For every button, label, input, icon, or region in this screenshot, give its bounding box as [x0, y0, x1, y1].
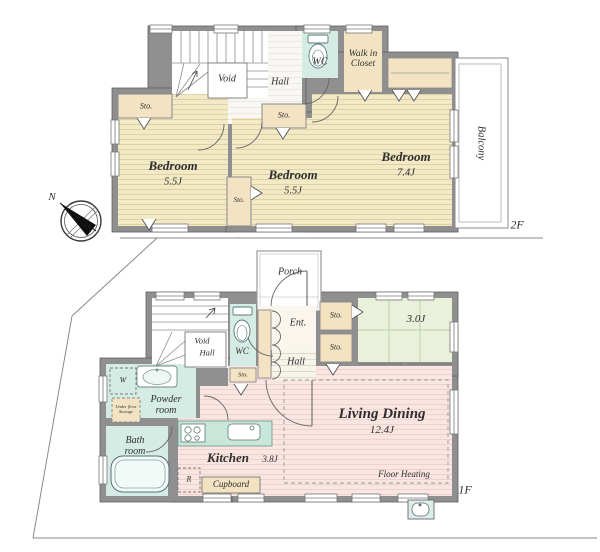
- room-label-hall-2f: Hall: [271, 78, 289, 89]
- room-label-balcony: Balcony: [475, 126, 486, 160]
- floor-plan: Void Hall WC Walk in Closet Sto. Sto. St…: [0, 0, 600, 552]
- room-area-bedroom2: 5.5J: [284, 185, 302, 196]
- room-label-bath-room: Bath room: [115, 436, 155, 458]
- room-label-storage-wc: Sto.: [238, 371, 248, 378]
- room-label-stair-hall: Hall: [199, 348, 214, 357]
- room-label-hall-1f: Hall: [287, 358, 305, 369]
- room-label-storage-2f-a: Sto.: [140, 103, 152, 112]
- room-label-porch: Porch: [278, 268, 302, 279]
- room-label-void-2f: Void: [218, 75, 236, 86]
- room-label-wc-1f: WC: [235, 347, 249, 357]
- room-label-walk-in-closet: Walk in Closet: [339, 49, 387, 70]
- porch-structure: [257, 251, 321, 314]
- label-under-floor-storage: Under floor Storage: [114, 405, 138, 415]
- room-label-storage-2f-b: Sto.: [278, 112, 290, 121]
- room-label-storage-2f-c: Sto.: [234, 197, 245, 205]
- room-label-storage-1f-1: Sto.: [330, 312, 342, 321]
- room-area-bedroom3: 7.4J: [397, 167, 415, 178]
- room-label-entrance: Ent.: [290, 319, 306, 330]
- room-label-kitchen: Kitchen: [207, 451, 249, 465]
- stove-icon: [181, 424, 205, 442]
- label-cupboard: Cupboard: [213, 480, 249, 490]
- floor1-label: 1F: [458, 484, 471, 497]
- shoe-cabinet: [258, 310, 271, 378]
- room-label-bedroom2: Bedroom: [268, 168, 317, 182]
- room-label-stair-void: Void: [194, 336, 209, 345]
- kitchen-sink-icon: [228, 424, 260, 440]
- room-area-living-dining: 12.4J: [370, 425, 394, 437]
- label-refrigerator: R: [187, 476, 192, 485]
- washbasin-icon: [137, 366, 177, 387]
- room-label-bedroom1: Bedroom: [148, 159, 197, 173]
- room-area-kitchen: 3.8J: [262, 455, 277, 465]
- compass-icon: [60, 201, 101, 241]
- water-heater-icon: [408, 500, 434, 519]
- room-label-powder-room: Powder room: [139, 395, 193, 417]
- label-floor-heating: Floor Heating: [378, 470, 430, 480]
- bathtub-icon: [111, 456, 169, 492]
- compass-north-label: N: [48, 192, 55, 204]
- room-area-bedroom1: 5.5J: [164, 176, 182, 187]
- room-label-bedroom3: Bedroom: [381, 150, 430, 164]
- room-label-living-dining: Living Dining: [338, 406, 425, 422]
- room-label-storage-1f-2: Sto.: [330, 344, 342, 353]
- label-washer: W: [120, 377, 127, 386]
- room-label-wc-2f: WC: [313, 58, 328, 69]
- floor2-label: 2F: [510, 219, 523, 232]
- room-label-tatami: 3.0J: [407, 314, 426, 326]
